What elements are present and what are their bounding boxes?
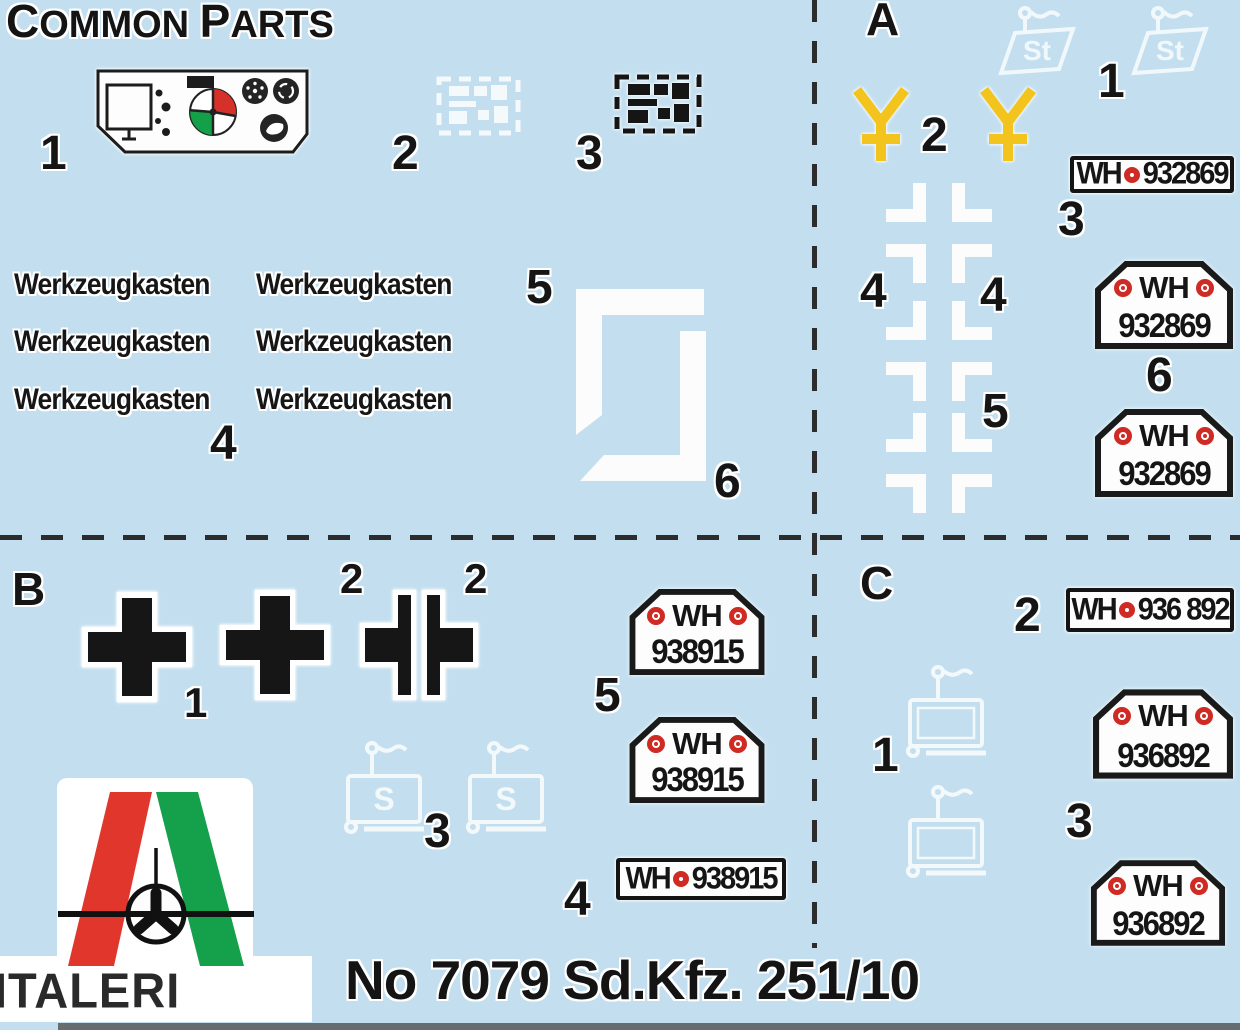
b-item1-label: 1 [184,682,207,724]
a-item5-label: 5 [982,388,1009,436]
section-a-header: A [866,0,899,42]
plate-seal-icon [1114,279,1132,297]
license-plate-pentagon-a: WH 932869 [1094,260,1234,350]
white-outline-cross [886,301,992,401]
plate-seal-icon [1113,707,1131,725]
st-tactical-marking: St [1126,5,1211,83]
yellow-trident-symbol [977,86,1039,161]
werkzeugkasten-decal: Werkzeugkasten [256,268,452,302]
plate-seal-icon [729,735,747,753]
data-plate-decal-black [614,74,702,134]
plate-seal-icon [1196,427,1214,445]
license-plate-rect-a: WH 932869 [1070,156,1234,193]
a-item2-label: 2 [921,112,948,160]
c-item2-label: 2 [1014,592,1041,640]
yellow-trident-symbol [850,86,912,161]
balkenkreuz-solid [82,592,192,702]
radio-tactical-symbol [900,780,992,878]
license-plate-pentagon-a: WH 932869 [1094,408,1234,498]
plate-seal-icon [673,871,689,887]
decal-sheet: COMMON PARTS 1 [0,0,1240,1030]
a-item3-label: 3 [1058,196,1085,244]
section-c-header: C [860,560,893,606]
white-outline-cross [886,413,992,513]
white-outline-cross [886,183,992,283]
b-item3-label: 3 [424,808,451,856]
a-item4-label-left: 4 [860,268,887,316]
plate-seal-icon [1196,279,1214,297]
plate-seal-icon [647,735,665,753]
plate-seal-icon [1119,602,1135,618]
balkenkreuz-split [360,590,478,700]
c-item3-label: 3 [1066,798,1093,846]
italeri-logo-icon [58,780,254,970]
common-item2-label: 2 [392,130,419,178]
plate-seal-icon [1195,707,1213,725]
common-item3-label: 3 [576,130,603,178]
white-bracket-decal [570,283,710,483]
license-plate-rect-c: WH 936 892 [1066,588,1234,632]
b-item5-label: 5 [594,672,621,720]
s-tactical-symbol: S [338,736,430,834]
dashboard-decal [95,68,310,156]
license-plate-pentagon-b: WH 938915 [628,716,766,804]
bottom-edge [58,1023,1240,1030]
brand-name: ITALERI [0,961,180,1019]
license-plate-pentagon-c: WH 936892 [1090,858,1226,948]
werkzeugkasten-decal: Werkzeugkasten [256,383,452,417]
balkenkreuz-solid [220,590,330,700]
radio-tactical-symbol [900,660,992,758]
data-plate-decal-white [436,76,521,136]
common-parts-title: COMMON PARTS [6,0,334,48]
common-item4-label: 4 [210,420,237,468]
svg-text:S: S [373,781,394,817]
common-item6-label: 6 [714,458,741,506]
svg-text:S: S [495,781,516,817]
license-plate-pentagon-c: WH 936892 [1092,688,1234,780]
license-plate-pentagon-b: WH 938915 [628,588,766,676]
b-item2-label: 2 [340,558,363,600]
st-tactical-marking: St [993,5,1078,83]
plate-seal-icon [1114,427,1132,445]
werkzeugkasten-decal: Werkzeugkasten [256,325,452,359]
plate-seal-icon [1108,877,1126,895]
common-item1-label: 1 [40,130,67,178]
plate-seal-icon [729,607,747,625]
a-item4-label-right: 4 [980,272,1007,320]
plate-seal-icon [1190,877,1208,895]
a-item1-label: 1 [1098,58,1125,106]
horizontal-dashed-divider [0,535,1240,540]
werkzeugkasten-decal: Werkzeugkasten [14,383,210,417]
vertical-dashed-divider [812,0,817,948]
plate-seal-icon [1124,167,1140,183]
b-item4-label: 4 [564,876,591,924]
svg-text:St: St [1156,35,1184,66]
werkzeugkasten-decal: Werkzeugkasten [14,325,210,359]
sheet-number-title: No 7079 Sd.Kfz. 251/10 [345,948,919,1012]
c-item1-label: 1 [872,732,899,780]
license-plate-rect-b: WH 938915 [616,858,786,900]
plate-seal-icon [647,607,665,625]
section-b-header: B [12,566,45,612]
b-item2-label: 2 [464,558,487,600]
a-item6-label: 6 [1146,352,1173,400]
s-tactical-symbol: S [460,736,552,834]
svg-text:St: St [1023,35,1051,66]
common-item5-label: 5 [526,264,553,312]
werkzeugkasten-decal: Werkzeugkasten [14,268,210,302]
